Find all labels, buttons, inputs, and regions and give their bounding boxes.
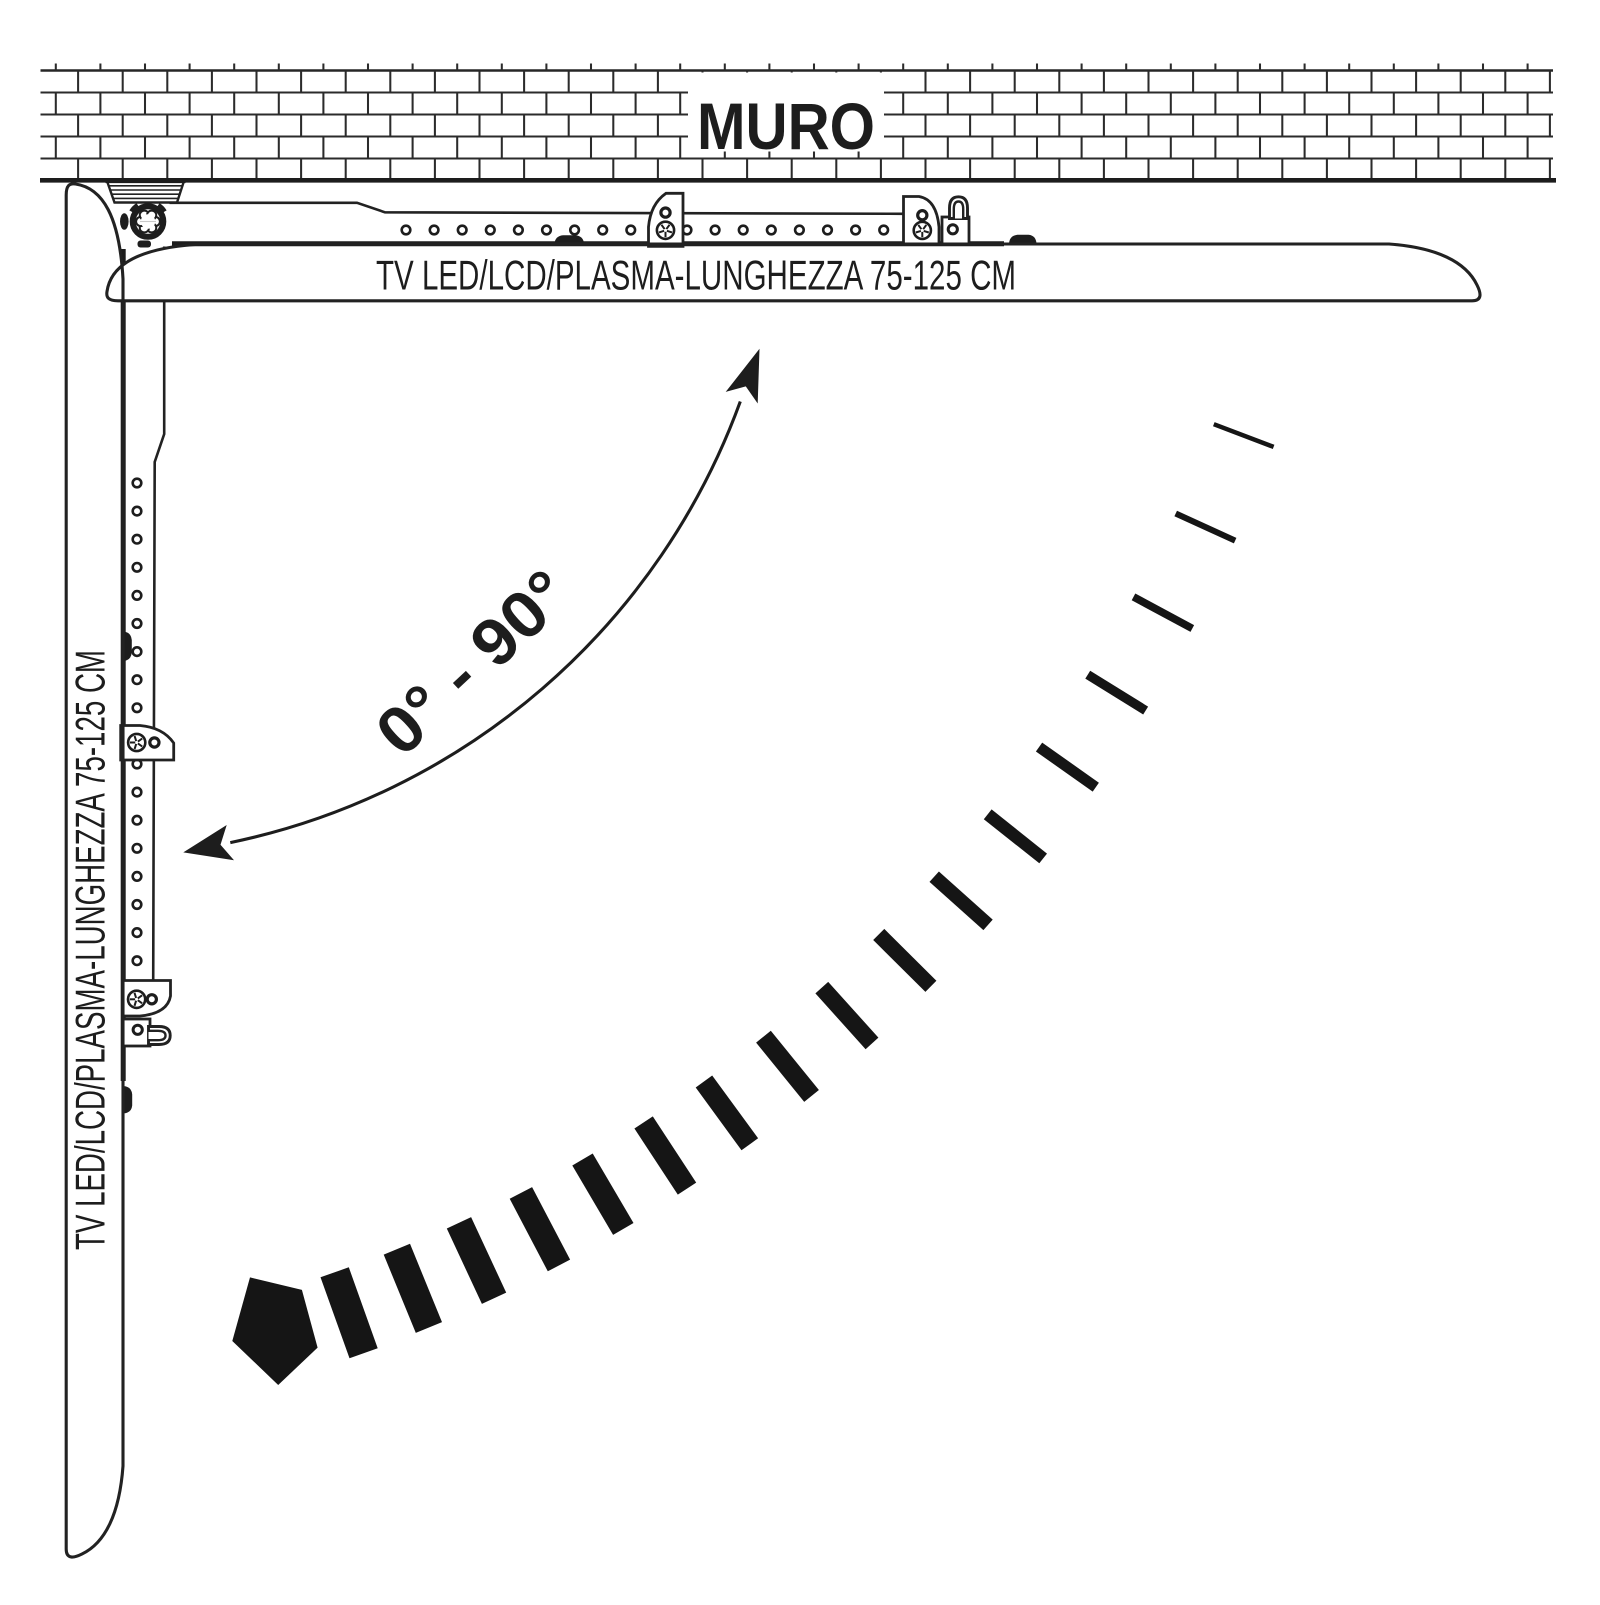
svg-text:TV LED/LCD/PLASMA-LUNGHEZZA 75: TV LED/LCD/PLASMA-LUNGHEZZA 75-125 CM [67, 650, 114, 1250]
svg-text:MURO: MURO [697, 89, 875, 163]
svg-text:TV LED/LCD/PLASMA-LUNGHEZZA 75: TV LED/LCD/PLASMA-LUNGHEZZA 75-125 CM [376, 252, 1016, 299]
